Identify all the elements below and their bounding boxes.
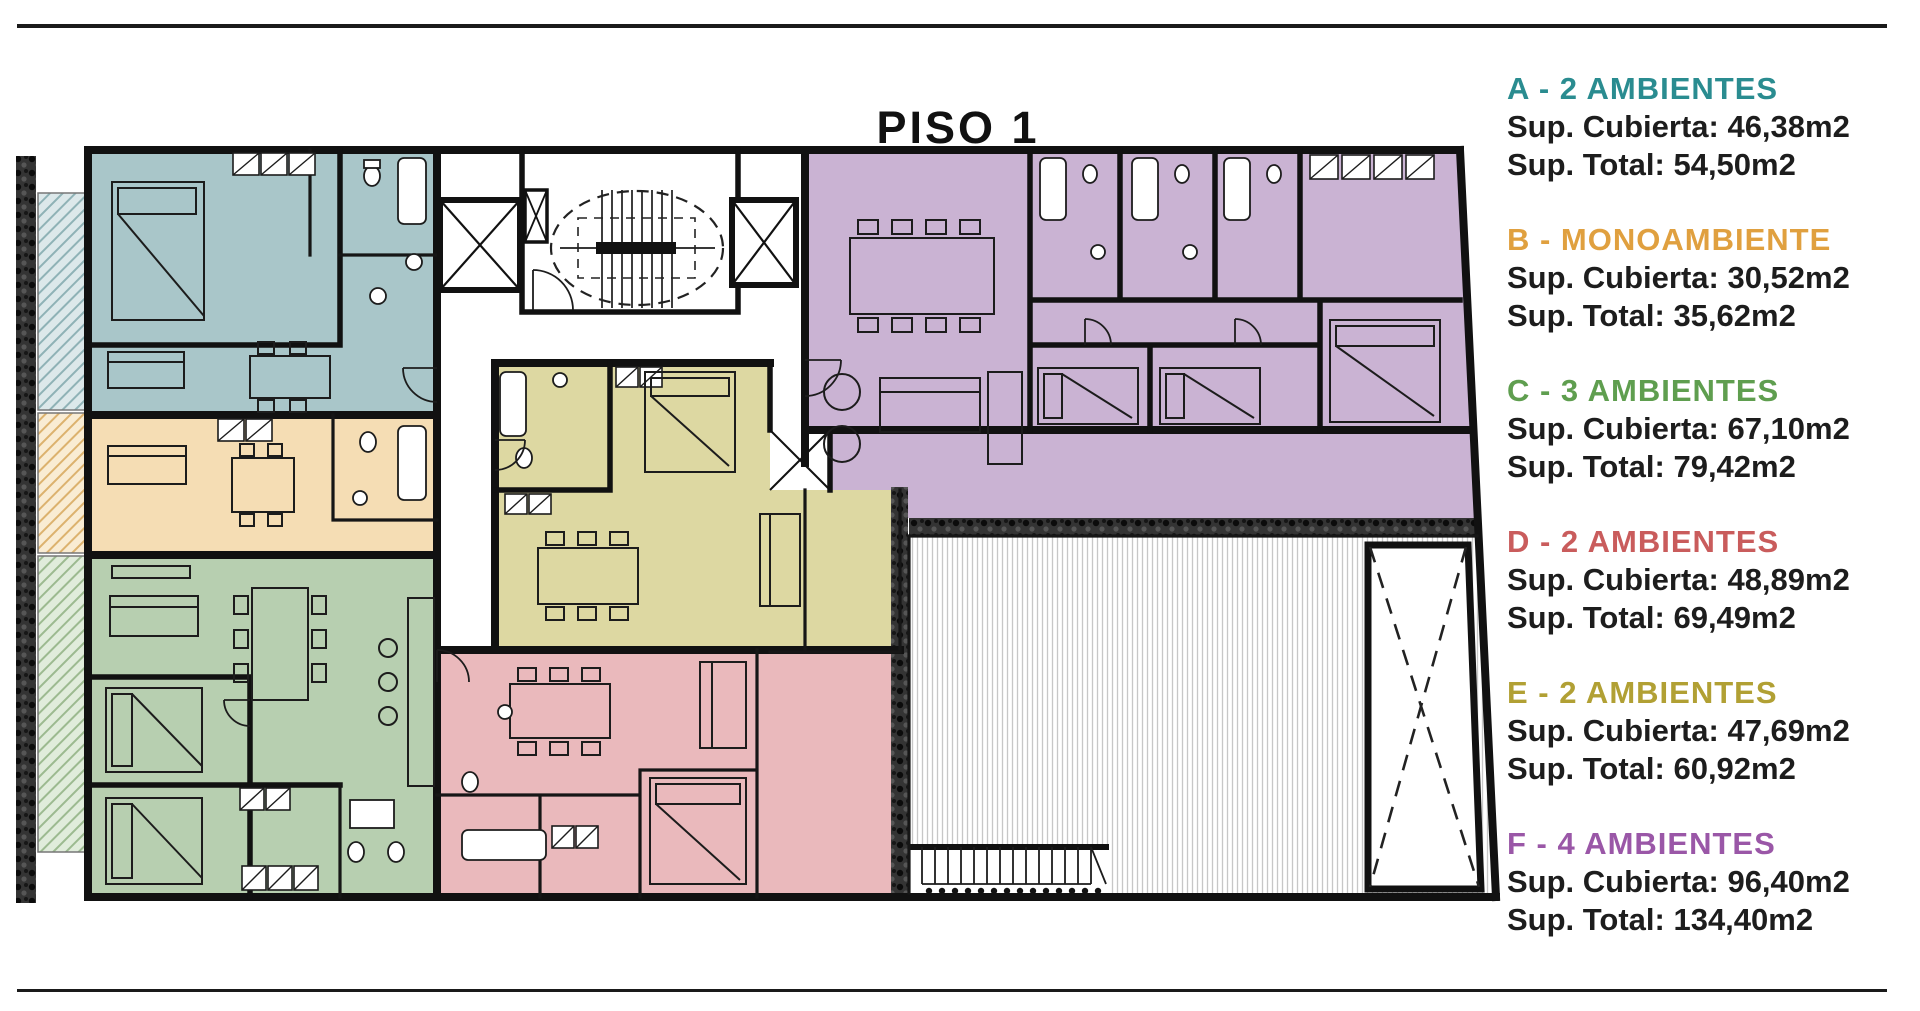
legend-item-f: F - 4 AMBIENTES Sup. Cubierta: 96,40m2 S… (1507, 825, 1907, 939)
void-shaft (1368, 545, 1481, 889)
floor-plan (0, 0, 1510, 1011)
hedge-left (16, 156, 36, 903)
legend-item-c-total: Sup. Total: 79,42m2 (1507, 448, 1907, 486)
legend-item-a-total: Sup. Total: 54,50m2 (1507, 146, 1907, 184)
elevator-left (440, 200, 520, 290)
vent-shaft-small (525, 190, 547, 242)
legend-item-b-total: Sup. Total: 35,62m2 (1507, 297, 1907, 335)
legend-item-f-cubierta: Sup. Cubierta: 96,40m2 (1507, 863, 1907, 901)
legend-item-a-cubierta: Sup. Cubierta: 46,38m2 (1507, 108, 1907, 146)
legend-item-e-total: Sup. Total: 60,92m2 (1507, 750, 1907, 788)
core-corridor (437, 363, 495, 650)
legend-item-c-cubierta: Sup. Cubierta: 67,10m2 (1507, 410, 1907, 448)
legend-item-d-total: Sup. Total: 69,49m2 (1507, 599, 1907, 637)
floor-plan-page: PISO 1 (0, 0, 1920, 1011)
balcony-b-hatch (38, 413, 88, 553)
elevator-right (732, 200, 796, 285)
legend-item-b: B - MONOAMBIENTE Sup. Cubierta: 30,52m2 … (1507, 221, 1907, 335)
legend-item-e: E - 2 AMBIENTES Sup. Cubierta: 47,69m2 S… (1507, 674, 1907, 788)
legend-item-c: C - 3 AMBIENTES Sup. Cubierta: 67,10m2 S… (1507, 372, 1907, 486)
balcony-c-hatch (38, 556, 88, 852)
legend-item-a-title: A - 2 AMBIENTES (1507, 70, 1907, 108)
patio-area (909, 536, 1492, 895)
legend-item-c-title: C - 3 AMBIENTES (1507, 372, 1907, 410)
stair-landing-bar (596, 242, 676, 254)
legend-item-e-title: E - 2 AMBIENTES (1507, 674, 1907, 712)
legend-item-e-cubierta: Sup. Cubierta: 47,69m2 (1507, 712, 1907, 750)
balcony-a-hatch (38, 193, 88, 410)
legend-item-f-total: Sup. Total: 134,40m2 (1507, 901, 1907, 939)
legend: A - 2 AMBIENTES Sup. Cubierta: 46,38m2 S… (1507, 70, 1907, 976)
legend-item-b-title: B - MONOAMBIENTE (1507, 221, 1907, 259)
legend-item-d: D - 2 AMBIENTES Sup. Cubierta: 48,89m2 S… (1507, 523, 1907, 637)
unit-a-region (88, 150, 437, 415)
legend-item-a: A - 2 AMBIENTES Sup. Cubierta: 46,38m2 S… (1507, 70, 1907, 184)
left-balconies (38, 193, 88, 852)
legend-item-d-cubierta: Sup. Cubierta: 48,89m2 (1507, 561, 1907, 599)
legend-item-d-title: D - 2 AMBIENTES (1507, 523, 1907, 561)
hedge-terrace-horizontal (909, 518, 1475, 536)
patio-stair (909, 847, 1109, 895)
legend-item-b-cubierta: Sup. Cubierta: 30,52m2 (1507, 259, 1907, 297)
legend-item-f-title: F - 4 AMBIENTES (1507, 825, 1907, 863)
closet-unit-a (233, 153, 315, 175)
